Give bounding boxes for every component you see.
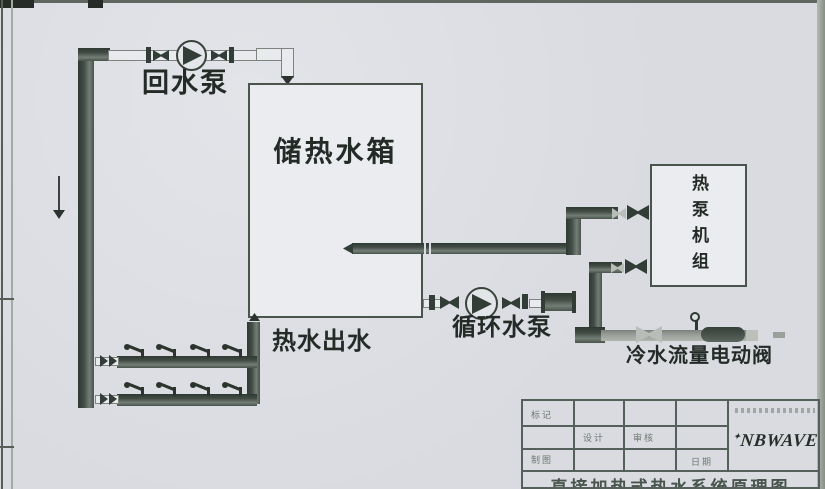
circulation-pump-label: 循环水泵 (452, 315, 552, 340)
company-text-illegible (735, 408, 815, 413)
frame-left-outer-line (1, 0, 3, 489)
scan-artifact-top-left (0, 0, 34, 8)
title-block-cell-draft: 制图 (531, 453, 553, 466)
motor-valve-actuator-icon (690, 312, 700, 322)
faucet-icon (124, 382, 146, 395)
title-block-cell-date: 日期 (691, 455, 713, 468)
frame-left-tick (0, 298, 14, 300)
motor-valve-body (701, 327, 745, 342)
faucet-icon (222, 382, 244, 395)
scan-artifact-top (88, 0, 103, 8)
faucet-icon (190, 344, 212, 357)
pipe-union-gap (424, 243, 426, 254)
flange-tick (522, 294, 528, 309)
pipe-tank-to-unit (352, 243, 568, 254)
tap-manifold-upper (117, 356, 257, 368)
title-block-vline (675, 401, 677, 470)
title-block-vline (573, 401, 575, 470)
flow-arrow-down-icon (53, 210, 65, 219)
return-pump-icon (176, 40, 207, 71)
flow-arrow-down-line (58, 176, 60, 212)
storage-tank-label: 储热水箱 (248, 137, 423, 166)
pump-rotor-icon (472, 294, 492, 314)
title-block-hline (523, 448, 727, 450)
logo-text: NBWAVE (739, 430, 818, 450)
pipe-left-riser (78, 48, 94, 408)
title-block-hline (523, 470, 818, 472)
title-block-vline (623, 401, 625, 470)
cold-water-valve-label: 冷水流量电动阀 (626, 345, 773, 366)
pipe-step-run (566, 207, 618, 219)
pipe-top-elbow (78, 48, 110, 61)
flange-tick (541, 291, 545, 313)
faucet-icon (222, 344, 244, 357)
heat-pump-unit-label: 热泵机组 (686, 174, 711, 278)
flange-tick (229, 47, 234, 63)
pipe-cold-end-tick (773, 332, 785, 338)
nbwave-logo: ✦NBWAVE (730, 430, 820, 451)
frame-left-inner-line (11, 0, 13, 489)
tap-manifold-lower (117, 394, 257, 406)
title-block-cell-review: 审核 (633, 431, 655, 444)
faucet-icon (190, 382, 212, 395)
title-block-vline (727, 401, 729, 470)
faucet-icon (156, 344, 178, 357)
hot-water-outlet-label: 热水出水 (272, 329, 372, 354)
flange-tick (572, 291, 576, 313)
title-block: 标记 设计 审核 制图 日期 ✦NBWAVE 直接加热式热水系统原理图 (521, 399, 820, 489)
storage-tank-box (248, 83, 423, 318)
pipe-tank-inlet-drop (281, 48, 294, 78)
pump-rotor-icon (183, 46, 202, 65)
valve-icon (627, 205, 649, 220)
faucet-icon (124, 344, 146, 357)
valve-icon (625, 259, 647, 274)
pipe-union-gap (429, 243, 431, 254)
frame-left-tick (0, 446, 14, 448)
flange-tick (429, 295, 435, 310)
faucet-icon (156, 382, 178, 395)
flange-tick (146, 47, 151, 63)
pipe-fitting-block (543, 293, 575, 311)
title-block-hline (523, 425, 727, 427)
piping-schematic-drawing: 回水泵 储热水箱 热水出水 热泵机组 (0, 0, 825, 489)
heat-pump-unit-box: 热泵机组 (650, 164, 747, 287)
pipe-cold-tail (746, 330, 758, 341)
union-icon (612, 208, 626, 219)
drawing-title: 直接加热式热水系统原理图 (523, 473, 818, 489)
frame-top-line (0, 0, 825, 3)
title-block-cell-design: 设计 (583, 431, 605, 444)
valve-icon (440, 296, 459, 309)
title-block-cell-mark: 标记 (531, 408, 553, 421)
motor-valve-stem (695, 321, 698, 330)
return-pump-label: 回水泵 (142, 70, 229, 98)
valve-icon (502, 297, 520, 309)
